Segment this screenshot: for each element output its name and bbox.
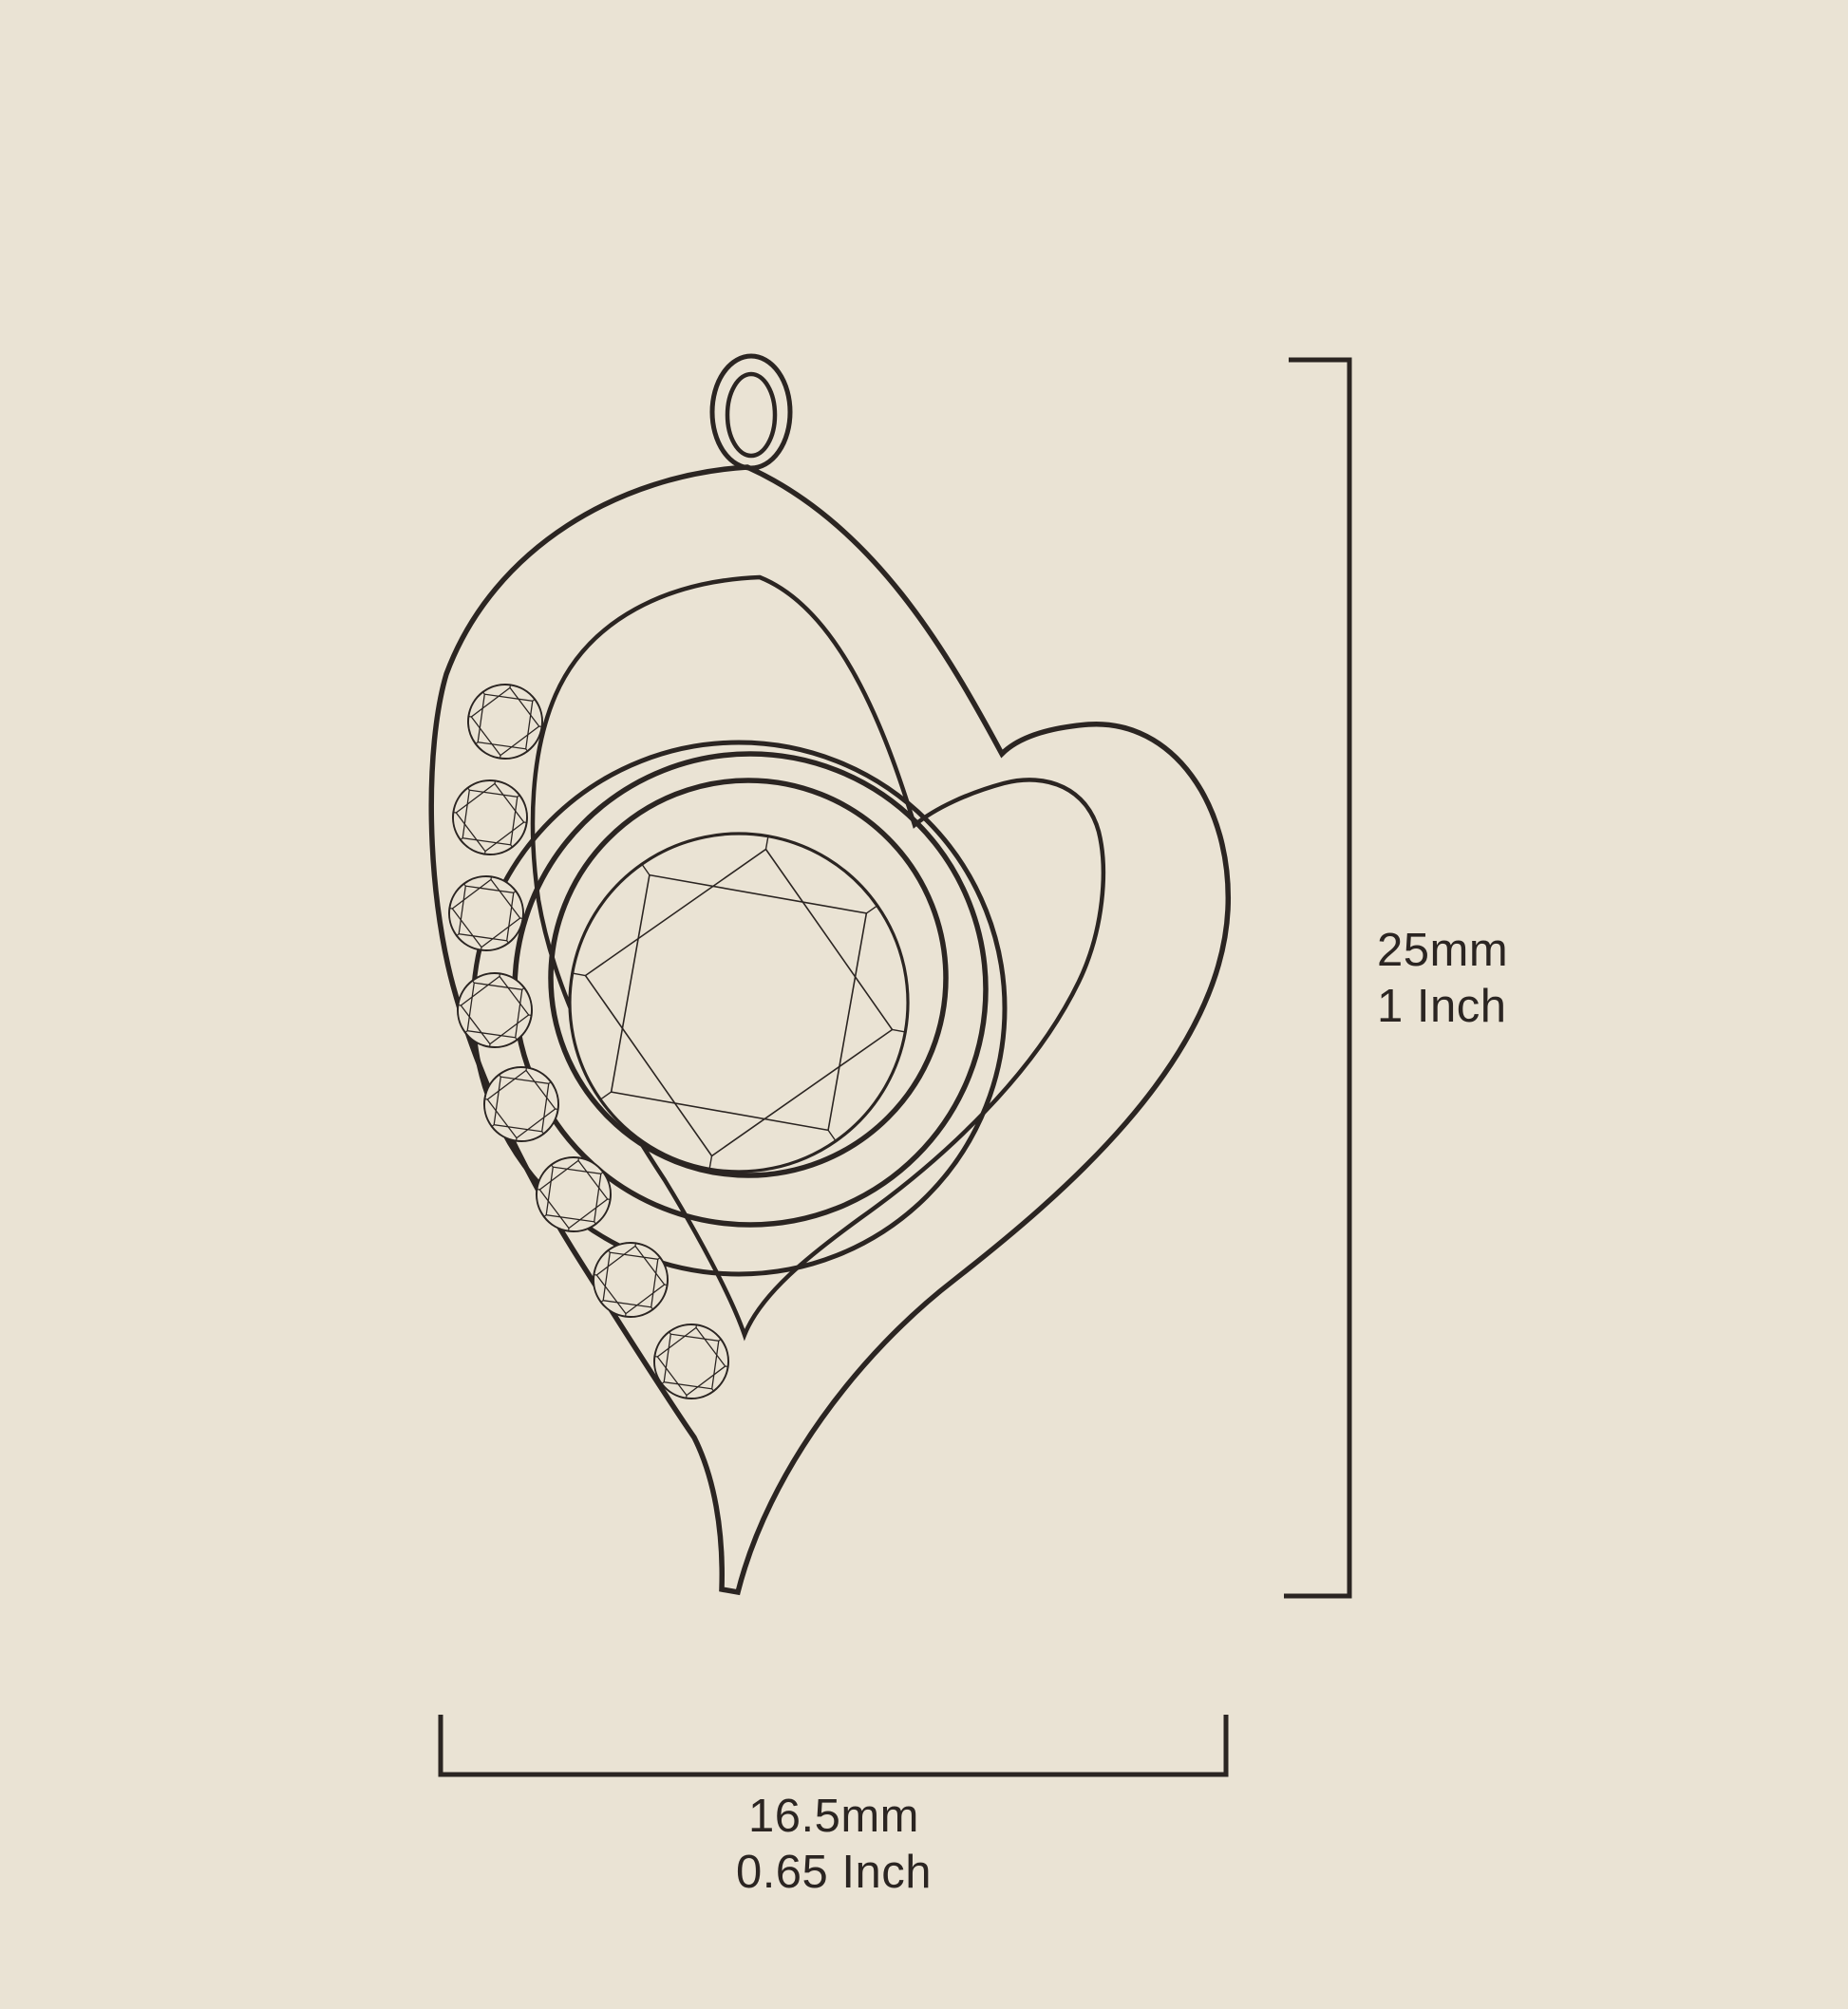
accent-gem [444, 872, 528, 955]
bail [712, 356, 790, 468]
pendant-illustration [0, 0, 1848, 2009]
accent-gem [448, 776, 532, 859]
height-dimension-bracket [1284, 360, 1349, 1596]
accent-gem [480, 1062, 563, 1146]
height-metric-value: 25mm [1377, 923, 1508, 979]
accent-gem [532, 1153, 615, 1236]
width-dimension-bracket [441, 1715, 1226, 1774]
pendant-dimension-sheet: 25mm 1 Inch 16.5mm 0.65 Inch [0, 0, 1848, 2009]
width-dimension-label: 16.5mm 0.65 Inch [596, 1789, 1071, 1901]
width-metric-value: 16.5mm [596, 1789, 1071, 1845]
height-imperial-value: 1 Inch [1377, 979, 1508, 1035]
height-dimension-label: 25mm 1 Inch [1377, 923, 1508, 1035]
center-gem [543, 807, 934, 1198]
accent-gem [589, 1238, 672, 1322]
accent-gem [453, 968, 537, 1052]
width-imperial-value: 0.65 Inch [596, 1845, 1071, 1901]
accent-gem [463, 680, 547, 763]
pendant-line-art [431, 356, 1349, 1774]
